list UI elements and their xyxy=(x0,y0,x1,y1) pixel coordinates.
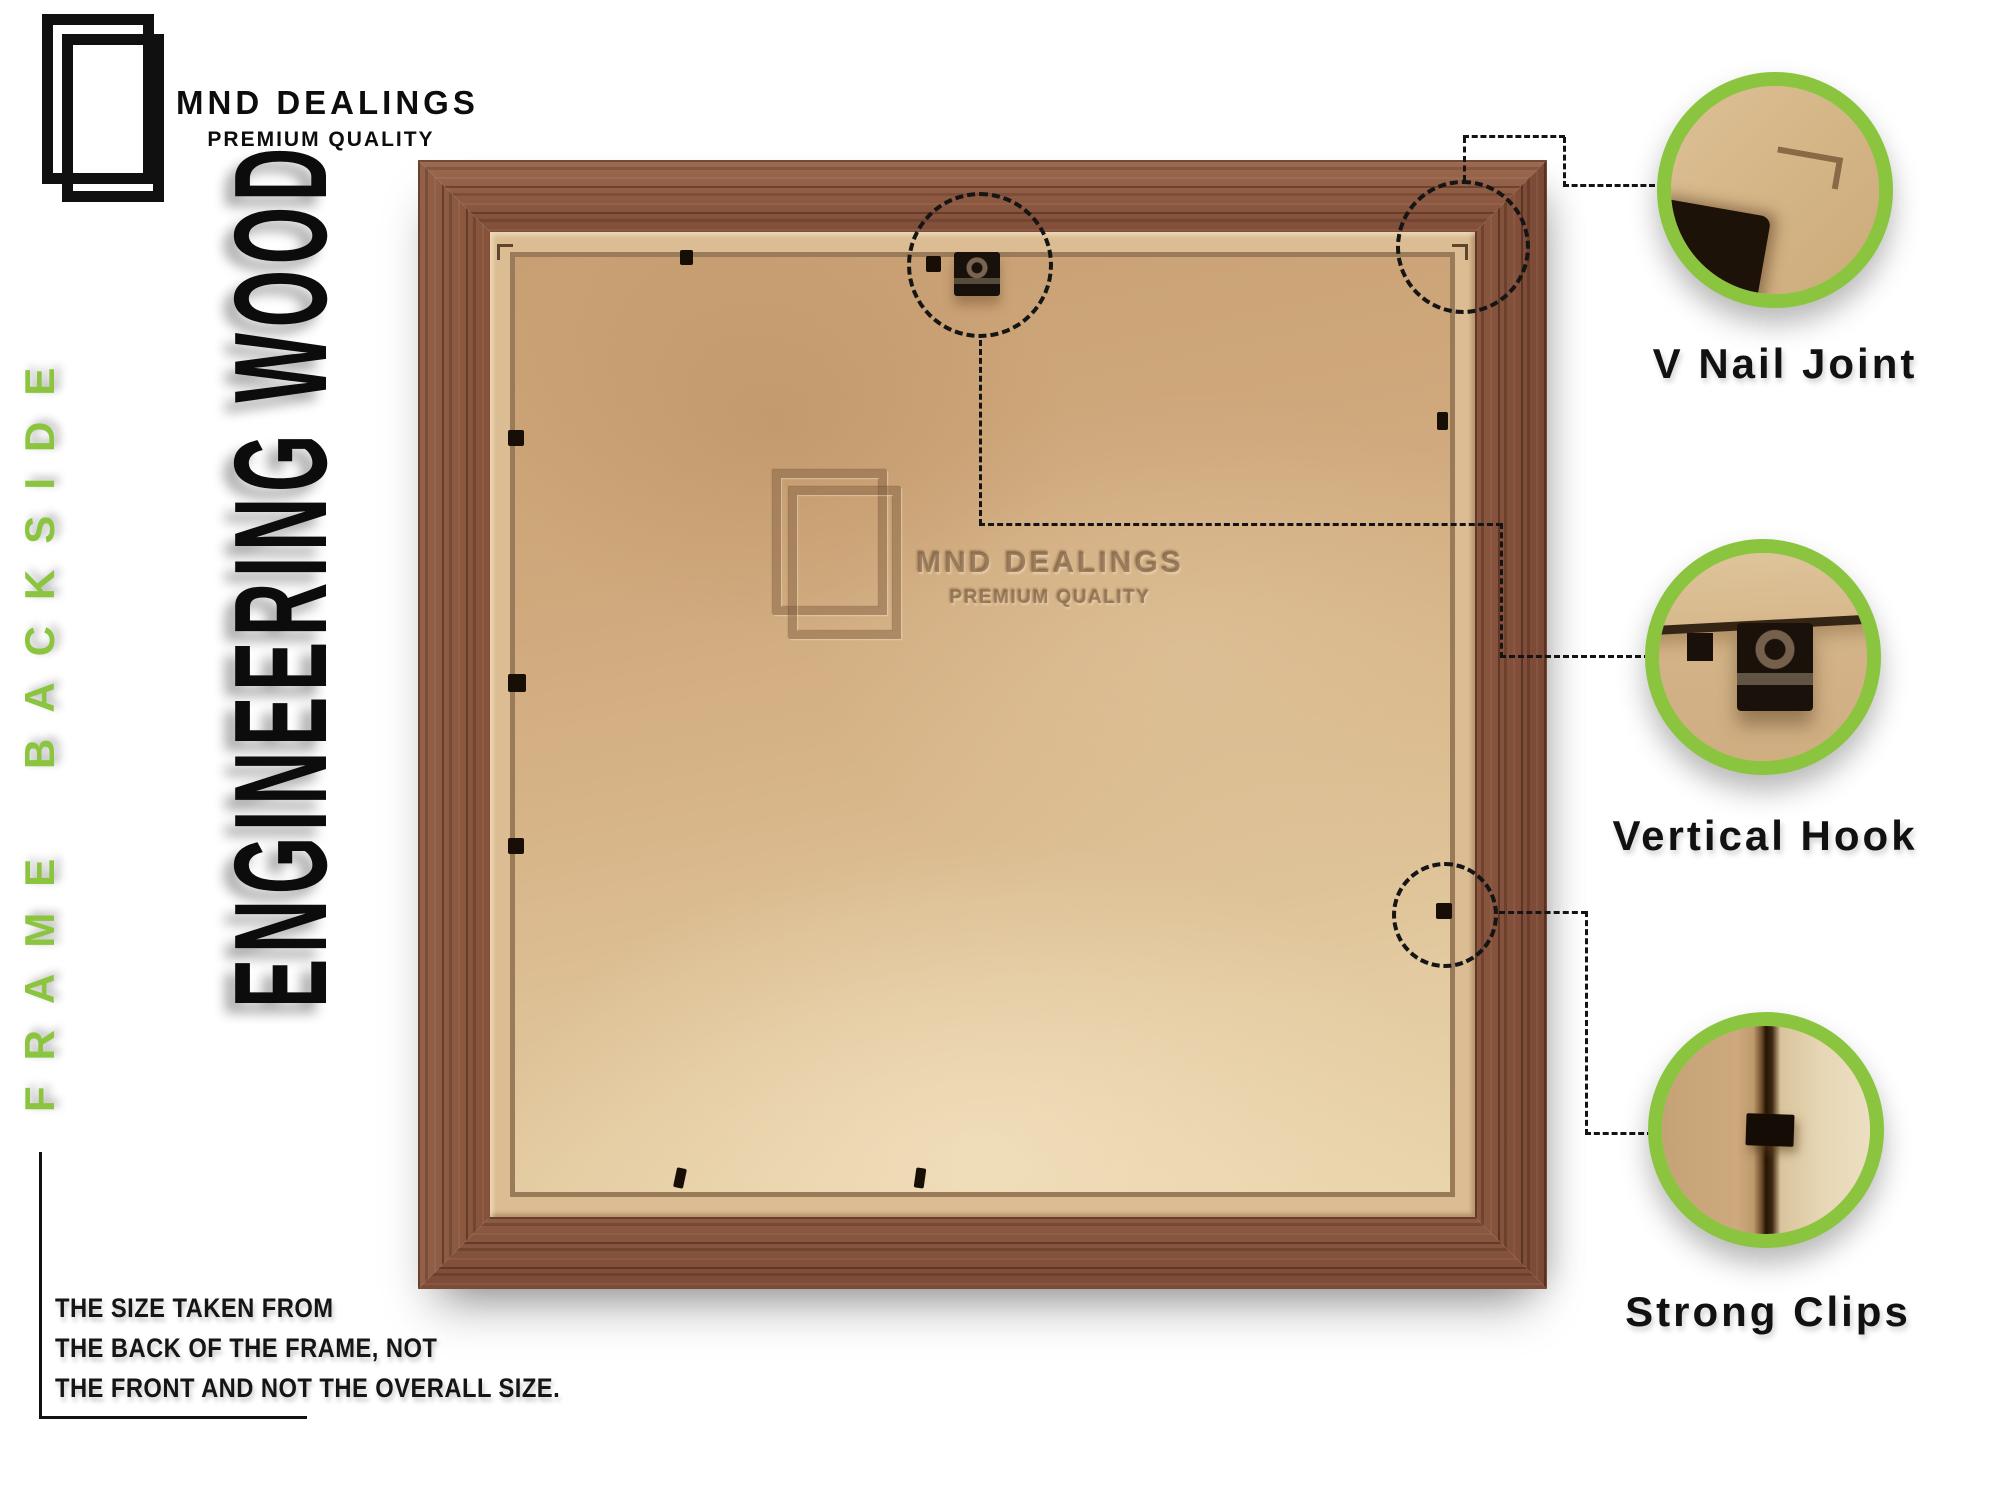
connector-vnail-seg2 xyxy=(1463,135,1565,138)
connector-hook-seg4 xyxy=(1500,655,1650,658)
connector-clips-seg3 xyxy=(1585,1132,1653,1135)
brand-name: MND DEALINGS xyxy=(176,84,466,122)
focus-circle-clip xyxy=(1392,862,1498,968)
disclaimer-line-3: THE FRONT AND NOT THE OVERALL SIZE. xyxy=(55,1368,560,1408)
callout-circle-v-nail-joint xyxy=(1657,72,1893,308)
connector-hook-seg3 xyxy=(1500,523,1503,658)
connector-vnail-seg4 xyxy=(1563,184,1655,187)
hook-zoom-side-square xyxy=(1687,633,1713,661)
watermark-frame-icon xyxy=(789,487,901,639)
connector-clips-seg1 xyxy=(1499,911,1587,914)
connector-hook-seg1 xyxy=(979,340,982,525)
hook-zoom-board-edge xyxy=(1645,539,1881,636)
frame-wood-left xyxy=(418,160,490,1289)
lip-corner-mark-left xyxy=(497,244,513,260)
callout-circle-vertical-hook xyxy=(1645,539,1881,775)
watermark-tagline: PREMIUM QUALITY xyxy=(905,587,1195,609)
engineering-wood-label: ENGINEERING WOOD xyxy=(212,142,351,1008)
focus-circle-hook xyxy=(907,192,1053,338)
callout-label-v-nail-joint: V Nail Joint xyxy=(1595,340,1975,388)
connector-hook-seg2 xyxy=(979,523,1502,526)
callout-circle-strong-clips xyxy=(1648,1012,1884,1248)
focus-circle-corner-joint xyxy=(1396,180,1530,314)
hook-zoom-metal-hook xyxy=(1737,623,1813,711)
watermark-name: MND DEALINGS xyxy=(905,546,1195,580)
watermark-block: MND DEALINGS PREMIUM QUALITY xyxy=(905,546,1195,609)
callout-label-strong-clips: Strong Clips xyxy=(1578,1288,1958,1336)
disclaimer-line-2: THE BACK OF THE FRAME, NOT xyxy=(55,1328,560,1368)
connector-vnail-seg1 xyxy=(1463,137,1466,181)
product-image-canvas: MND DEALINGS PREMIUM QUALITY FRAME BACKS… xyxy=(0,0,2000,1500)
frame-backside-label: FRAME BACKSIDE xyxy=(16,342,64,1112)
clip-right-1 xyxy=(1437,412,1448,430)
connector-vnail-seg3 xyxy=(1563,137,1566,187)
clip-left-2 xyxy=(508,674,526,692)
clip-left-1 xyxy=(508,430,524,446)
size-disclaimer: THE SIZE TAKEN FROM THE BACK OF THE FRAM… xyxy=(55,1288,560,1408)
frame-wood-bottom xyxy=(418,1217,1547,1289)
disclaimer-line-1: THE SIZE TAKEN FROM xyxy=(55,1288,560,1328)
clips-zoom-clip xyxy=(1745,1113,1794,1147)
clip-left-3 xyxy=(508,838,524,854)
mdf-backboard xyxy=(515,257,1450,1192)
frame-wood-right xyxy=(1475,160,1547,1289)
brand-frame-icon xyxy=(62,34,164,202)
disclaimer-rule-vertical xyxy=(39,1152,42,1418)
clip-top-1 xyxy=(680,250,693,265)
disclaimer-rule-horizontal xyxy=(39,1416,307,1419)
connector-clips-seg2 xyxy=(1585,911,1588,1135)
callout-label-vertical-hook: Vertical Hook xyxy=(1575,812,1955,860)
